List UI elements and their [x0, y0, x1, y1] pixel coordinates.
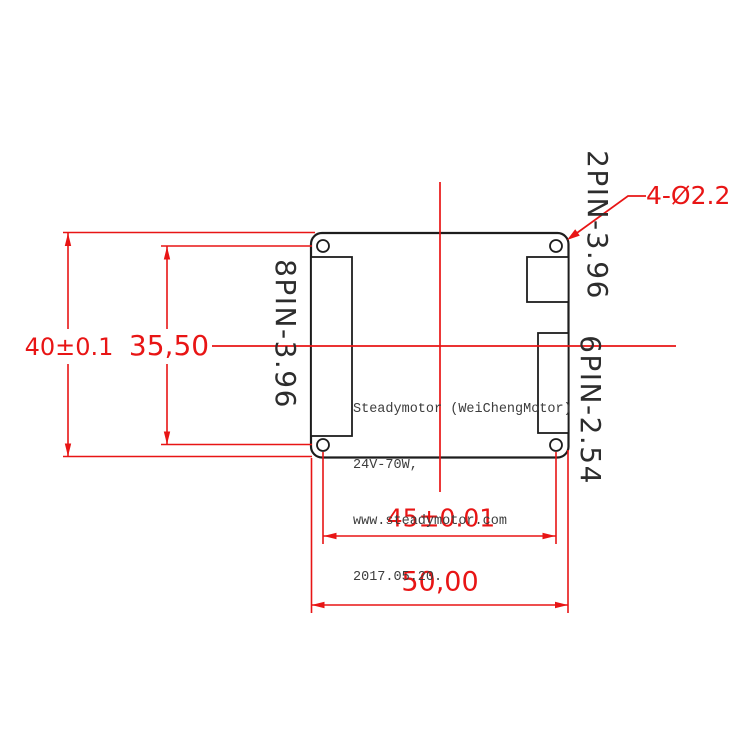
dimension-drawing: 40±0.1 35,50 45±0.01 50,00 4-Ø2.2 8PIN-3… — [0, 0, 750, 754]
arrowhead — [65, 444, 71, 457]
hole-callout-label: 4-Ø2.2 — [646, 183, 730, 208]
leader-arrowhead — [567, 229, 580, 240]
note-rating: 24V-70W, — [353, 457, 572, 476]
dim-hole-spacing-v-label: 35,50 — [127, 332, 211, 360]
connector-6pin-label: 6PIN-2.54 — [576, 335, 604, 485]
arrowhead — [312, 602, 325, 608]
arrowhead — [65, 233, 71, 246]
mounting-hole-bottom-left — [317, 439, 329, 451]
connector-2pin-label: 2PIN-3.96 — [583, 150, 611, 300]
note-manufacturer: Steadymotor (WeiChengMotor) — [353, 401, 572, 420]
connector-2pin-outline — [527, 257, 569, 302]
dim-board-height-label: 40±0.1 — [23, 335, 116, 359]
board-silkscreen-notes: Steadymotor (WeiChengMotor) 24V-70W, www… — [353, 364, 572, 624]
arrowhead — [324, 533, 337, 539]
mounting-hole-top-right — [550, 240, 562, 252]
mounting-hole-top-left — [317, 240, 329, 252]
arrowhead — [164, 247, 170, 260]
note-website: www.steadymotor.com — [353, 513, 572, 532]
arrowhead — [164, 432, 170, 445]
connector-8pin-label: 8PIN-3.96 — [271, 259, 299, 409]
note-date: 2017.05.20. — [353, 569, 572, 588]
